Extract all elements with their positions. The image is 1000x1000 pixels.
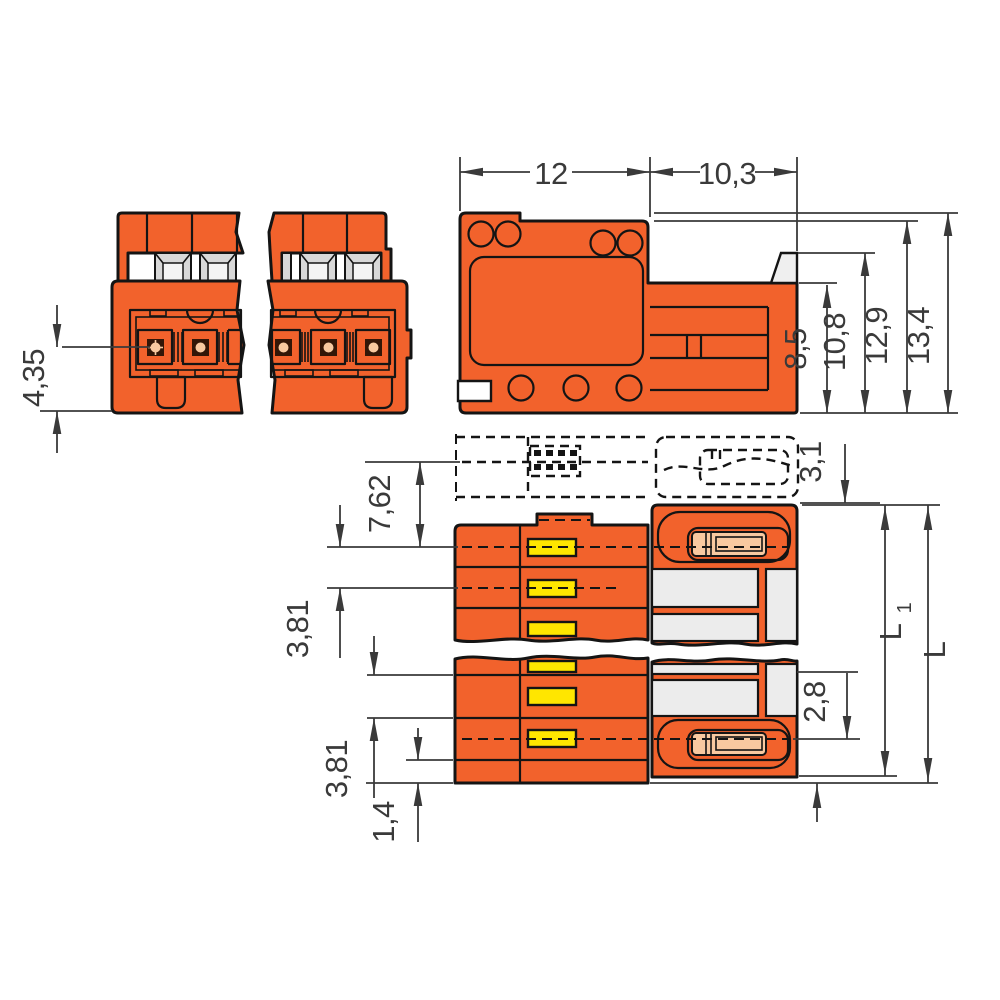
empty-slot xyxy=(652,680,758,716)
dim-label-2-8: 2,8 xyxy=(797,681,832,723)
dim-label-3-81-upper: 3,81 xyxy=(280,600,315,658)
phantom-mating-connector xyxy=(456,434,798,501)
dim-label-8-5: 8,5 xyxy=(778,328,813,370)
spring-contact xyxy=(528,661,576,672)
actuation-button-partial xyxy=(282,253,291,281)
dim-label-13-4: 13,4 xyxy=(901,307,936,366)
male-pin xyxy=(692,532,766,556)
empty-slot xyxy=(652,664,758,674)
dim-label-l1-subscript: 1 xyxy=(894,602,916,613)
actuation-button xyxy=(200,253,236,281)
actuation-button xyxy=(300,253,336,281)
dim-label-4-35: 4,35 xyxy=(16,349,51,407)
dim-label-l: L xyxy=(917,641,952,658)
dim-label-3-81-lower: 3,81 xyxy=(319,740,354,798)
actuation-button xyxy=(345,253,381,281)
empty-slot xyxy=(766,664,797,716)
actuation-button xyxy=(155,253,191,281)
bottom-view xyxy=(455,505,797,783)
dim-label-l1: L xyxy=(873,623,908,640)
dim-label-12: 12 xyxy=(534,156,567,191)
dim-label-12-9: 12,9 xyxy=(859,307,894,365)
dim-label-3-1: 3,1 xyxy=(793,441,828,483)
dim-label-7-62: 7,62 xyxy=(362,475,397,533)
empty-slot xyxy=(652,614,758,641)
spring-contact xyxy=(528,622,576,636)
side-view xyxy=(458,213,797,413)
spring-contact xyxy=(528,688,576,705)
dim-label-10-8: 10,8 xyxy=(817,313,852,371)
front-view xyxy=(112,213,411,413)
dim-label-1-4: 1,4 xyxy=(366,801,401,843)
dim-label-10-3: 10,3 xyxy=(698,156,756,191)
empty-slot xyxy=(652,569,758,607)
dim-pole-pitches: 7,62 3,81 3,81 1,4 xyxy=(280,462,460,843)
latch xyxy=(771,253,797,283)
keying-notch xyxy=(458,381,491,401)
connector-dimension-drawing: 4,35 12 xyxy=(0,0,1000,1000)
empty-slot xyxy=(766,569,797,641)
technical-drawing-canvas: 4,35 12 xyxy=(0,0,1000,1000)
